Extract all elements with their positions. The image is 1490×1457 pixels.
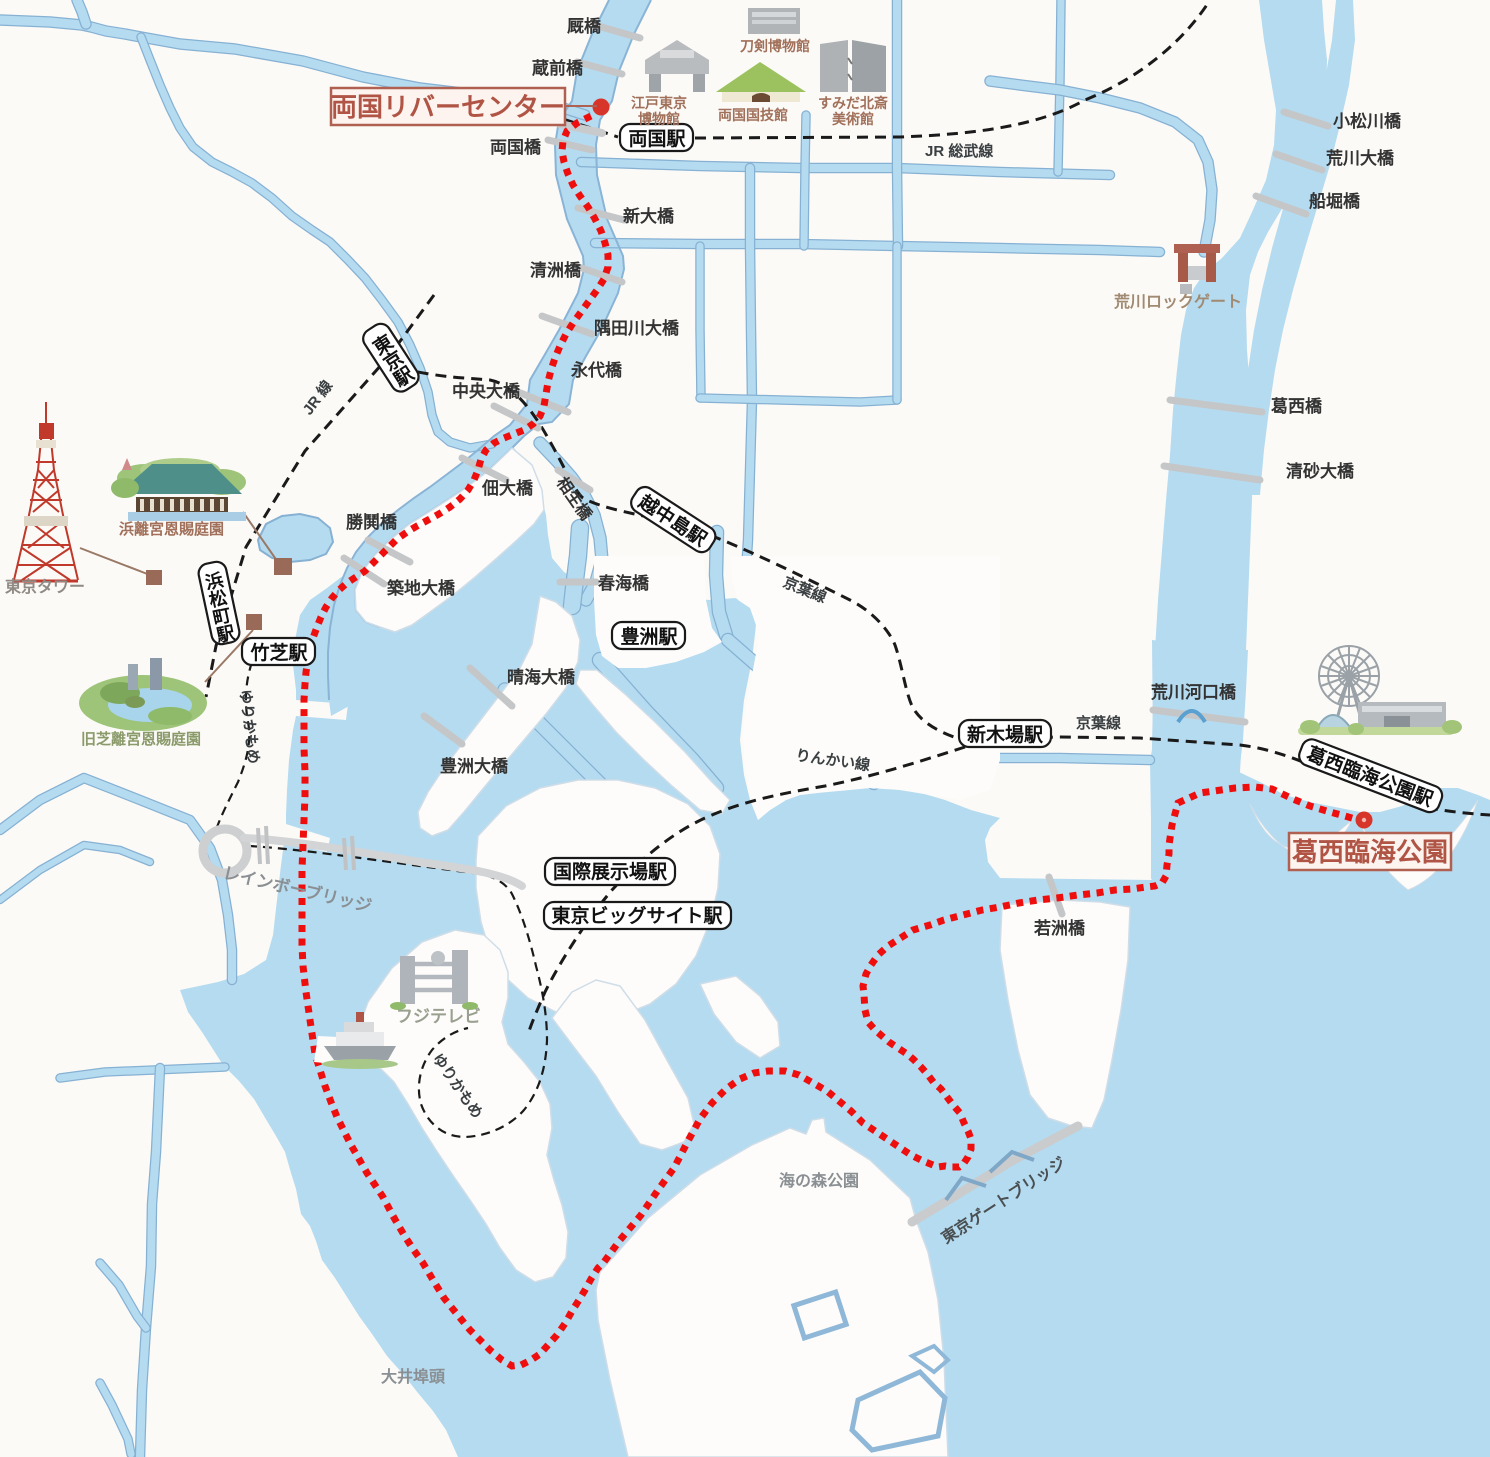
svg-text:勝鬨橋: 勝鬨橋 <box>346 512 398 532</box>
svg-text:両国橋: 両国橋 <box>490 137 542 157</box>
svg-text:フジテレビ: フジテレビ <box>396 1007 481 1026</box>
svg-text:清洲橋: 清洲橋 <box>530 260 582 280</box>
svg-text:船堀橋: 船堀橋 <box>1309 191 1361 211</box>
svg-text:新大橋: 新大橋 <box>623 206 675 226</box>
svg-text:豊洲大橋: 豊洲大橋 <box>440 756 509 776</box>
svg-text:海の森公園: 海の森公園 <box>779 1171 859 1190</box>
svg-text:竹芝駅: 竹芝駅 <box>249 641 308 664</box>
svg-text:浜離宮恩賜庭園: 浜離宮恩賜庭園 <box>119 520 224 538</box>
svg-text:荒川大橋: 荒川大橋 <box>1325 148 1395 168</box>
svg-text:春海橋: 春海橋 <box>598 573 650 593</box>
svg-text:国際展示場駅: 国際展示場駅 <box>553 860 668 883</box>
svg-text:築地大橋: 築地大橋 <box>386 578 456 598</box>
svg-text:刀剣博物館: 刀剣博物館 <box>740 38 810 54</box>
svg-text:大井埠頭: 大井埠頭 <box>381 1367 446 1386</box>
svg-text:小松川橋: 小松川橋 <box>1333 111 1402 131</box>
svg-text:晴海大橋: 晴海大橋 <box>507 667 576 687</box>
svg-text:豊洲駅: 豊洲駅 <box>620 625 678 648</box>
svg-text:両国リバーセンター: 両国リバーセンター <box>331 92 565 122</box>
svg-text:美術館: 美術館 <box>832 111 874 127</box>
svg-text:江戸東京: 江戸東京 <box>631 95 687 111</box>
svg-text:旧芝離宮恩賜庭園: 旧芝離宮恩賜庭園 <box>81 730 201 748</box>
svg-text:両国駅: 両国駅 <box>628 128 686 150</box>
svg-text:すみだ北斎: すみだ北斎 <box>818 95 888 111</box>
svg-text:新木場駅: 新木場駅 <box>967 723 1044 746</box>
svg-text:永代橋: 永代橋 <box>570 360 623 380</box>
svg-text:若洲橋: 若洲橋 <box>1033 918 1086 938</box>
svg-text:東京ビッグサイト駅: 東京ビッグサイト駅 <box>551 904 723 927</box>
svg-text:荒川河口橋: 荒川河口橋 <box>1150 682 1237 702</box>
svg-text:京葉線: 京葉線 <box>1076 714 1121 732</box>
svg-text:蔵前橋: 蔵前橋 <box>532 58 584 78</box>
svg-text:中央大橋: 中央大橋 <box>452 381 521 401</box>
svg-text:両国国技館: 両国国技館 <box>718 107 788 123</box>
svg-text:JR 総武線: JR 総武線 <box>925 142 993 160</box>
svg-text:清砂大橋: 清砂大橋 <box>1286 461 1355 481</box>
svg-text:荒川ロックゲート: 荒川ロックゲート <box>1113 292 1242 311</box>
svg-text:葛西臨海公園: 葛西臨海公園 <box>1291 837 1448 867</box>
svg-text:博物館: 博物館 <box>638 111 680 127</box>
svg-text:厩橋: 厩橋 <box>567 16 602 36</box>
svg-text:佃大橋: 佃大橋 <box>481 478 534 498</box>
svg-text:東京タワー: 東京タワー <box>5 577 85 596</box>
svg-text:隅田川大橋: 隅田川大橋 <box>594 318 680 338</box>
svg-text:葛西橋: 葛西橋 <box>1270 396 1323 416</box>
